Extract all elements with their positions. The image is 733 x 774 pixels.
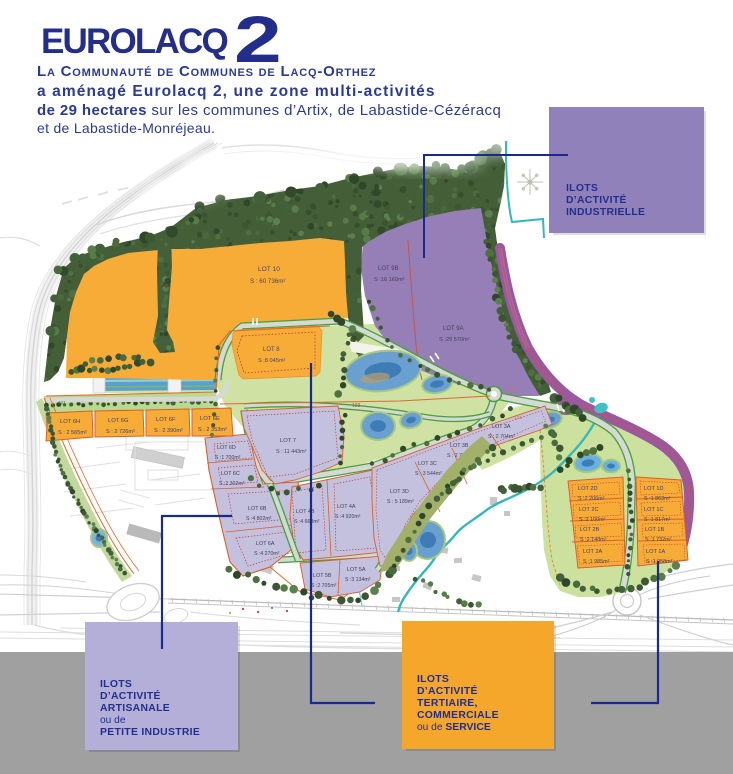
svg-text:S :4 668m²: S :4 668m²	[294, 519, 320, 525]
svg-text:S : 5 189m²: S : 5 189m²	[387, 499, 414, 505]
svg-text:D’ACTIVITÉ: D’ACTIVITÉ	[100, 689, 161, 702]
svg-text:ILOTS: ILOTS	[566, 183, 598, 194]
svg-text:S :4 270m²: S :4 270m²	[254, 551, 280, 557]
svg-text:LOT 2D: LOT 2D	[578, 486, 597, 492]
svg-text:LOT 9A: LOT 9A	[443, 326, 464, 332]
svg-text:LOT 3B: LOT 3B	[450, 443, 469, 449]
svg-text:LOT 1B: LOT 1B	[645, 527, 664, 533]
svg-text:S :1 958m²: S :1 958m²	[646, 559, 673, 565]
svg-text:LOT 3C: LOT 3C	[418, 461, 437, 467]
svg-text:S : 2 390m²: S : 2 390m²	[154, 428, 183, 434]
svg-text:PETITE INDUSTRIE: PETITE INDUSTRIE	[100, 727, 200, 738]
svg-text:S : 3 544m²: S : 3 544m²	[415, 471, 442, 477]
svg-text:LOT 1A: LOT 1A	[646, 549, 665, 555]
svg-text:S :1 732m²: S :1 732m²	[645, 537, 672, 543]
svg-text:S :2 100m²: S :2 100m²	[579, 517, 606, 523]
svg-text:INDUSTRIELLE: INDUSTRIELLE	[566, 207, 645, 218]
svg-text:123: 123	[352, 403, 361, 409]
svg-text:121: 121	[514, 415, 522, 420]
svg-text:ou de SERVICE: ou de SERVICE	[417, 722, 491, 733]
svg-text:S :8 045m²: S :8 045m²	[258, 358, 285, 364]
svg-text:S : 60 736m²: S : 60 736m²	[250, 278, 285, 285]
svg-text:LOT 5B: LOT 5B	[313, 573, 332, 579]
svg-text:121: 121	[58, 400, 66, 405]
svg-text:S : 2 353m²: S : 2 353m²	[198, 427, 227, 433]
svg-text:LOT 6G: LOT 6G	[108, 418, 129, 424]
svg-text:S :4 802m²: S :4 802m²	[246, 516, 272, 522]
svg-text:COMMERCIALE: COMMERCIALE	[417, 710, 499, 721]
svg-text:S : 11 443m²: S : 11 443m²	[276, 449, 307, 455]
svg-text:ILOTS: ILOTS	[100, 679, 132, 690]
svg-text:TERTIAIRE,: TERTIAIRE,	[417, 698, 478, 709]
svg-text:D’ACTIVITÉ: D’ACTIVITÉ	[566, 193, 627, 206]
svg-text:LOT 6F: LOT 6F	[156, 417, 176, 423]
svg-text:S : 2 704m²: S : 2 704m²	[488, 434, 515, 440]
svg-text:LOT 4A: LOT 4A	[337, 504, 356, 510]
svg-text:S :16 160m²: S :16 160m²	[374, 277, 405, 283]
svg-text:S :1 700m²: S :1 700m²	[215, 455, 241, 461]
svg-text:LOT 1C: LOT 1C	[644, 507, 663, 513]
svg-text:S :29 570m²: S :29 570m²	[439, 337, 470, 343]
svg-text:S : 2 565m²: S : 2 565m²	[58, 430, 87, 436]
svg-text:LOT 8: LOT 8	[263, 347, 280, 353]
svg-text:LOT 6A: LOT 6A	[256, 541, 275, 547]
svg-text:ou de: ou de	[100, 715, 126, 726]
svg-text:ARTISANALE: ARTISANALE	[100, 703, 170, 714]
svg-text:LOT 6D: LOT 6D	[217, 445, 236, 451]
svg-text:S : 2 726m²: S : 2 726m²	[106, 429, 135, 435]
svg-text:D’ACTIVITÉ: D’ACTIVITÉ	[417, 684, 478, 697]
svg-text:S :2 302m²: S :2 302m²	[219, 481, 245, 487]
svg-text:S :4 920m²: S :4 920m²	[335, 514, 361, 520]
svg-text:LOT 10: LOT 10	[258, 266, 280, 273]
svg-text:LOT 3A: LOT 3A	[492, 424, 511, 430]
svg-text:S :1 863m²: S :1 863m²	[644, 496, 671, 502]
svg-text:LOT 6B: LOT 6B	[248, 506, 267, 512]
svg-text:S :1 817m²: S :1 817m²	[644, 517, 671, 523]
svg-text:S :2 148m²: S :2 148m²	[580, 537, 607, 543]
svg-text:LOT 6H: LOT 6H	[60, 419, 80, 425]
svg-text:LOT 2A: LOT 2A	[583, 549, 602, 555]
svg-text:LOT 9B: LOT 9B	[378, 266, 399, 272]
svg-text:LOT 3D: LOT 3D	[390, 489, 409, 495]
svg-text:S :2 705m²: S :2 705m²	[311, 583, 337, 589]
svg-text:LOT 7: LOT 7	[280, 438, 296, 444]
svg-text:LOT 2C: LOT 2C	[579, 507, 598, 513]
svg-text:S :3 134m²: S :3 134m²	[345, 577, 371, 583]
svg-text:LOT 6E: LOT 6E	[200, 416, 220, 422]
svg-text:LOT 5A: LOT 5A	[347, 567, 366, 573]
svg-text:ILOTS: ILOTS	[417, 674, 449, 685]
svg-text:LOT 6C: LOT 6C	[221, 471, 240, 477]
svg-text:S :2 206m²: S :2 206m²	[578, 496, 605, 502]
svg-text:LOT 2B: LOT 2B	[580, 527, 599, 533]
svg-text:S :1 985m²: S :1 985m²	[583, 559, 610, 565]
svg-text:103: 103	[506, 387, 515, 393]
svg-text:LOT 1D: LOT 1D	[644, 486, 663, 492]
